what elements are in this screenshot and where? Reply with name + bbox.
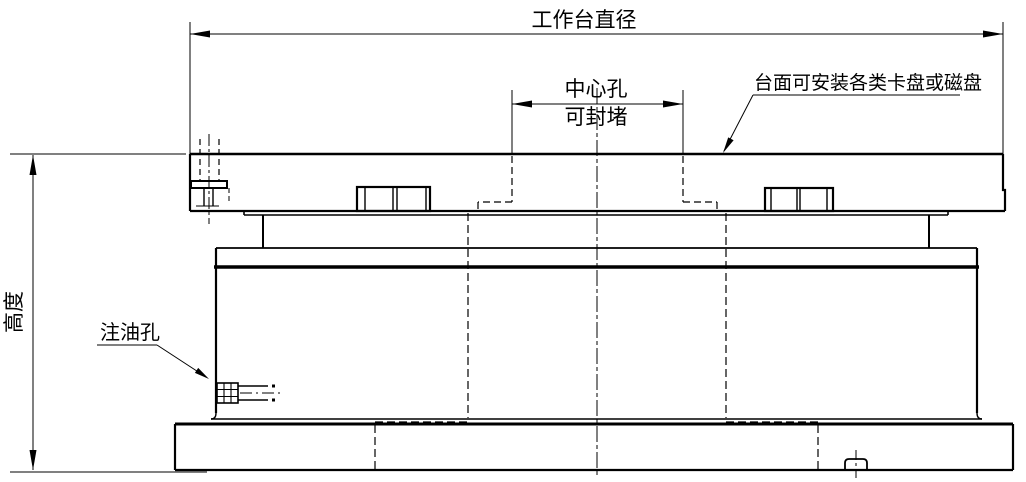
clamp-bolt-block-left (357, 187, 430, 211)
table-surface-note-label: 台面可安装各类卡盘或磁盘 (754, 72, 982, 94)
spacer-ring (263, 215, 929, 248)
center-hole-label-line2: 可封堵 (565, 106, 628, 129)
center-hole-label-line1: 中心孔 (565, 78, 628, 101)
arrowhead-bottom (30, 450, 37, 470)
note-table-surface (723, 95, 960, 153)
arrowhead-right (983, 31, 1003, 38)
arrowhead-left (190, 31, 210, 38)
bottom-locating-key (845, 450, 867, 478)
base (175, 424, 1013, 470)
oil-hole-label: 注油孔 (100, 321, 160, 344)
leader-arrowhead (195, 368, 209, 379)
leader-arrowhead (723, 137, 734, 153)
clamp-bolt-block-right (765, 188, 833, 211)
drawing-svg: 工作台直径 中心孔 可封堵 高度 台面可安装各类卡盘或磁盘 注油孔 (0, 0, 1026, 482)
worktable-diameter-label: 工作台直径 (532, 9, 637, 32)
note-oil-hole (97, 345, 209, 379)
arrowhead-top (30, 155, 37, 175)
arrowhead-right (663, 101, 683, 108)
technical-drawing-canvas: 工作台直径 中心孔 可封堵 高度 台面可安装各类卡盘或磁盘 注油孔 (0, 0, 1026, 482)
arrowhead-left (512, 101, 532, 108)
height-label: 高度 (3, 291, 26, 333)
oil-fitting (217, 383, 280, 403)
